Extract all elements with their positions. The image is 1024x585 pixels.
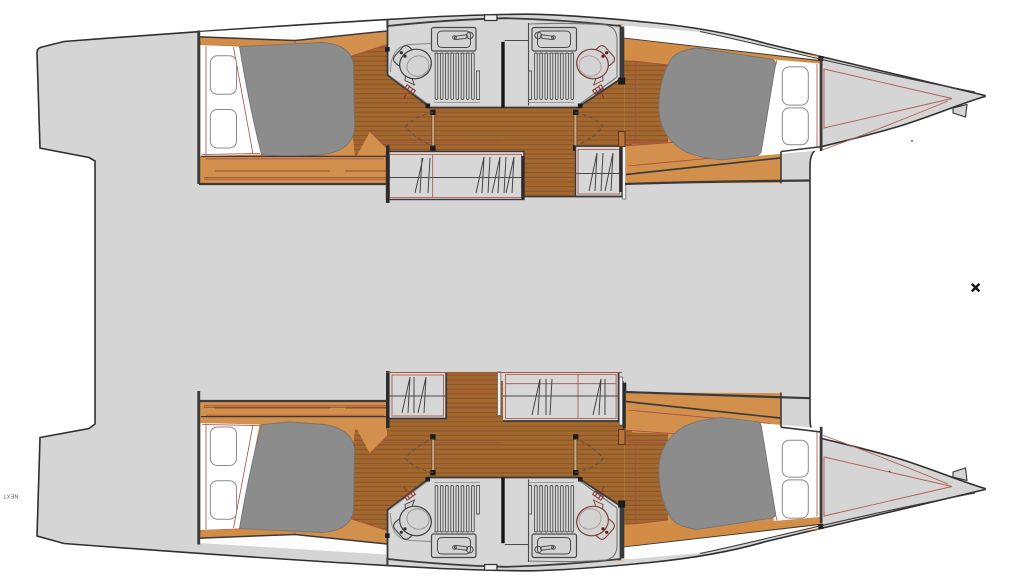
- svg-text:NEXT: NEXT: [3, 493, 19, 499]
